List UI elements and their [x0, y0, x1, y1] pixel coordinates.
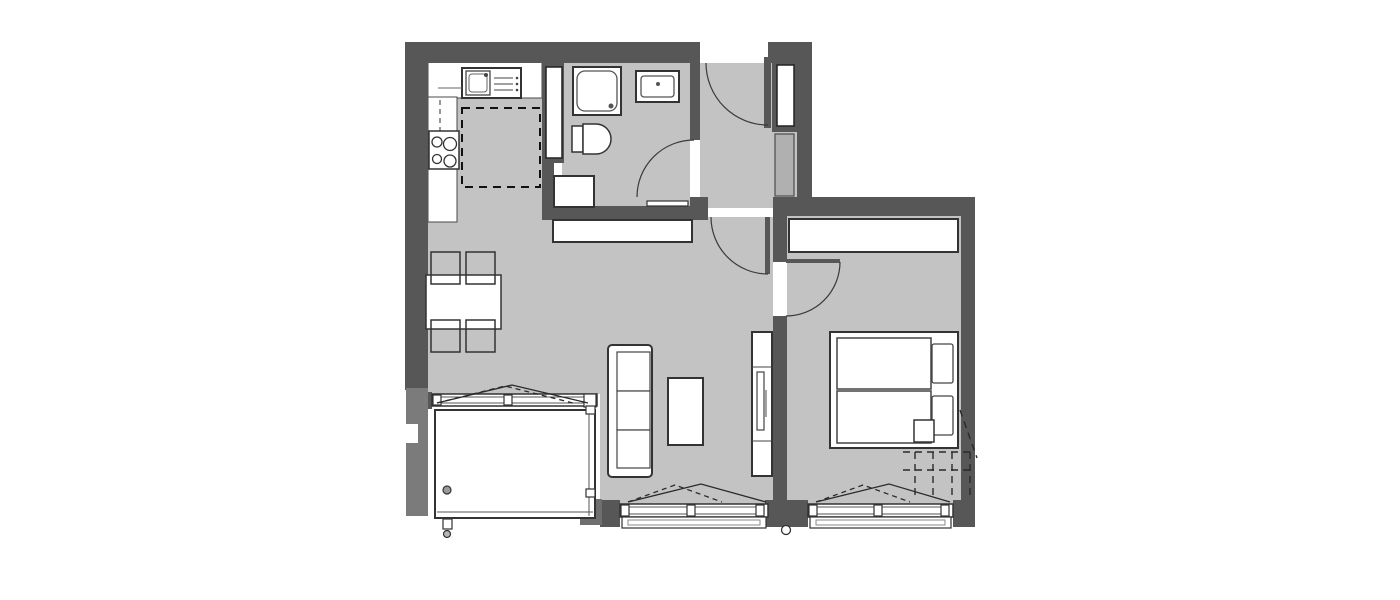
- towel-radiator: [647, 201, 688, 206]
- shower-drain-dot: [609, 104, 614, 109]
- pier-bedroom-window-right: [953, 500, 975, 527]
- toilet-bowl: [583, 124, 611, 154]
- entry-door-leaf: [764, 57, 771, 128]
- downspout-circle: [444, 531, 451, 538]
- bedroom-window-mullion-2: [874, 505, 882, 516]
- tv-screen: [757, 372, 764, 430]
- wall-balcony-left-notch: [406, 424, 418, 443]
- wall-bedroom-left-upper: [773, 216, 787, 262]
- sofa-cushion-3: [617, 430, 650, 468]
- kitchen-sink-unit: [462, 68, 521, 98]
- bedroom-wardrobe: [789, 219, 958, 252]
- pier-living-window-left: [600, 500, 620, 527]
- hall-cabinet: [775, 134, 794, 196]
- balcony-door-mullion-1: [433, 395, 441, 405]
- pier-between-windows: [765, 500, 808, 527]
- shower-tray: [573, 67, 621, 115]
- sideboard: [553, 220, 692, 242]
- column-marker: [782, 526, 791, 535]
- wall-bathroom-bottom: [542, 206, 708, 220]
- drainboard-dot-2: [516, 83, 519, 86]
- duct-shaft-bathroom: [546, 67, 562, 158]
- dining-table: [426, 275, 501, 329]
- balcony-door-mullion-2: [504, 395, 512, 405]
- living-window-mullion-3: [756, 505, 764, 516]
- bed-pillow-2: [932, 396, 953, 435]
- wall-balcony-left: [406, 388, 428, 516]
- floor-plan-page: [0, 0, 1400, 600]
- balcony-post-bottom: [586, 489, 595, 497]
- bedroom-window-sill: [810, 517, 951, 528]
- sofa-cushion-2: [617, 391, 650, 430]
- bedroom-window-mullion-1: [809, 505, 817, 516]
- wall-bathroom-hall-corner: [690, 197, 708, 217]
- floor-living-mid: [542, 220, 600, 394]
- wall-left: [405, 42, 428, 390]
- wall-bedroom-right: [961, 216, 975, 507]
- coffee-table: [668, 378, 703, 445]
- living-window-mullion-1: [621, 505, 629, 516]
- duct-shaft-hall: [777, 65, 794, 126]
- wall-bathroom-right-upper: [690, 63, 700, 140]
- nightstand: [914, 420, 934, 442]
- downspout-box: [443, 519, 452, 529]
- floor-plan-canvas: [0, 0, 1400, 600]
- wall-top: [405, 42, 700, 63]
- living-window-sill: [622, 517, 766, 528]
- wall-hall-right: [797, 42, 812, 204]
- hall-living-door-leaf: [765, 217, 770, 274]
- kitchen-faucet-dot: [484, 73, 488, 77]
- bedroom-door-leaf: [786, 259, 840, 263]
- washbasin-tap-dot: [656, 82, 660, 86]
- wall-bedroom-top: [773, 197, 975, 216]
- drainboard-dot-1: [516, 77, 519, 80]
- washing-machine: [554, 176, 594, 207]
- wall-bathroom-left-lower: [542, 162, 554, 208]
- balcony-post-top: [586, 406, 595, 414]
- toilet-tank: [572, 126, 583, 152]
- sofa-cushion-1: [617, 352, 650, 391]
- wall-bedroom-left-lower: [773, 316, 787, 502]
- balcony-drain: [443, 486, 451, 494]
- bed-mattress-1: [837, 338, 931, 389]
- balcony-deck: [435, 410, 595, 518]
- bedroom-window-mullion-3: [941, 505, 949, 516]
- balcony-door-post: [584, 394, 596, 407]
- drainboard-dot-3: [516, 89, 519, 92]
- bed-pillow-1: [932, 344, 953, 383]
- living-window-mullion-2: [687, 505, 695, 516]
- balcony-door-frame: [432, 394, 597, 406]
